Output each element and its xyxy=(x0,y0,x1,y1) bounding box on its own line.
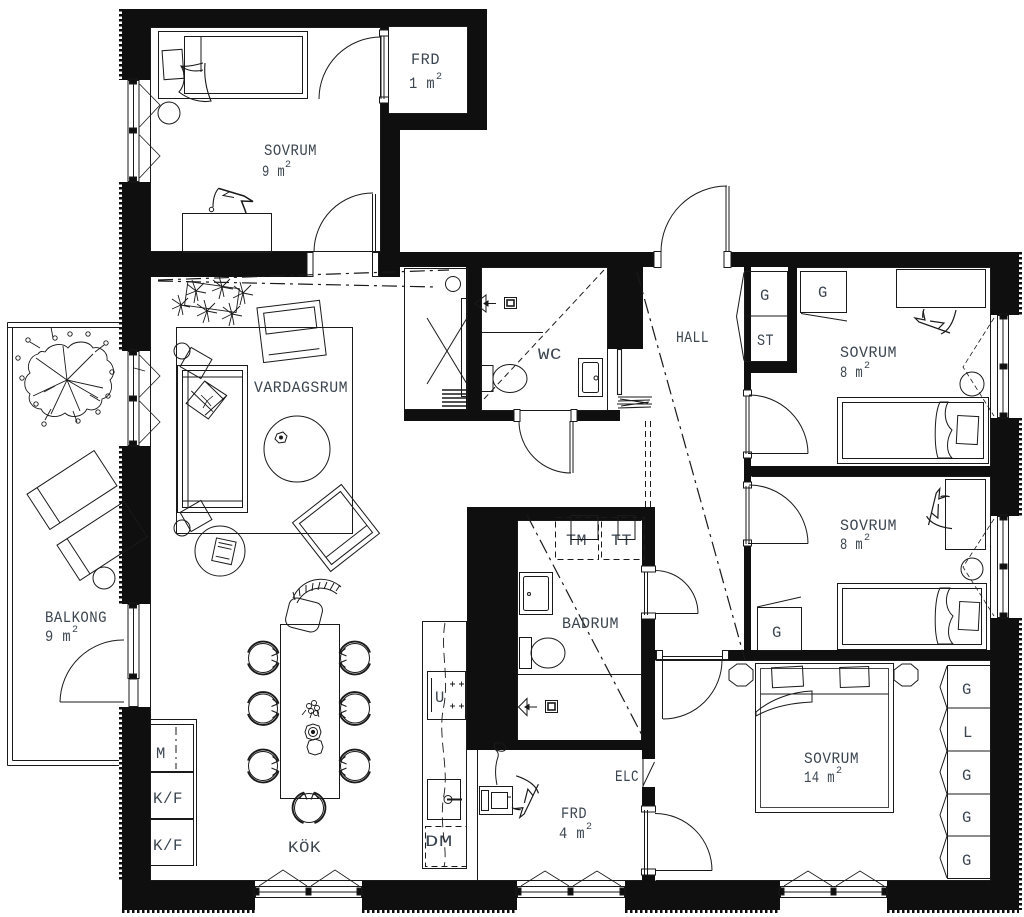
svg-text:BADRUM: BADRUM xyxy=(562,615,619,633)
svg-text:ELC: ELC xyxy=(615,768,639,786)
svg-text:TM: TM xyxy=(566,532,587,550)
svg-text:FRD: FRD xyxy=(561,805,587,823)
svg-text:FRD: FRD xyxy=(411,51,440,69)
svg-text:K/F: K/F xyxy=(153,837,183,855)
svg-text:U: U xyxy=(435,689,445,707)
svg-text:HALL: HALL xyxy=(676,329,709,347)
svg-text:K/F: K/F xyxy=(153,790,183,808)
svg-text:9 m: 9 m xyxy=(262,163,285,181)
svg-text:L: L xyxy=(963,724,973,742)
svg-text:2: 2 xyxy=(864,533,870,544)
svg-text:SOVRUM: SOVRUM xyxy=(804,750,859,768)
svg-text:8 m: 8 m xyxy=(840,536,863,554)
svg-text:2: 2 xyxy=(285,160,291,171)
svg-text:G: G xyxy=(962,852,972,870)
svg-text:2: 2 xyxy=(836,766,842,777)
svg-text:DM: DM xyxy=(425,833,453,851)
svg-text:M: M xyxy=(156,745,166,763)
svg-text:2: 2 xyxy=(436,72,442,83)
svg-text:SOVRUM: SOVRUM xyxy=(264,142,317,160)
svg-text:ST: ST xyxy=(757,332,774,350)
svg-text:TT: TT xyxy=(611,532,632,550)
svg-text:8 m: 8 m xyxy=(840,364,863,382)
svg-text:G: G xyxy=(962,809,972,827)
svg-text:4 m: 4 m xyxy=(559,825,585,843)
svg-text:G: G xyxy=(772,624,782,642)
svg-text:2: 2 xyxy=(72,625,78,636)
svg-text:2: 2 xyxy=(864,361,870,372)
svg-text:14 m: 14 m xyxy=(804,769,835,787)
svg-text:VARDAGSRUM: VARDAGSRUM xyxy=(254,379,348,397)
svg-text:SOVRUM: SOVRUM xyxy=(840,344,897,362)
svg-text:G: G xyxy=(818,284,828,302)
svg-text:G: G xyxy=(962,767,972,785)
svg-text:2: 2 xyxy=(586,822,592,833)
svg-text:WC: WC xyxy=(538,346,562,364)
svg-text:9 m: 9 m xyxy=(45,628,71,646)
svg-text:G: G xyxy=(962,681,972,699)
svg-text:KÖK: KÖK xyxy=(288,839,321,857)
svg-text:1 m: 1 m xyxy=(409,75,435,93)
svg-text:G: G xyxy=(760,287,770,305)
